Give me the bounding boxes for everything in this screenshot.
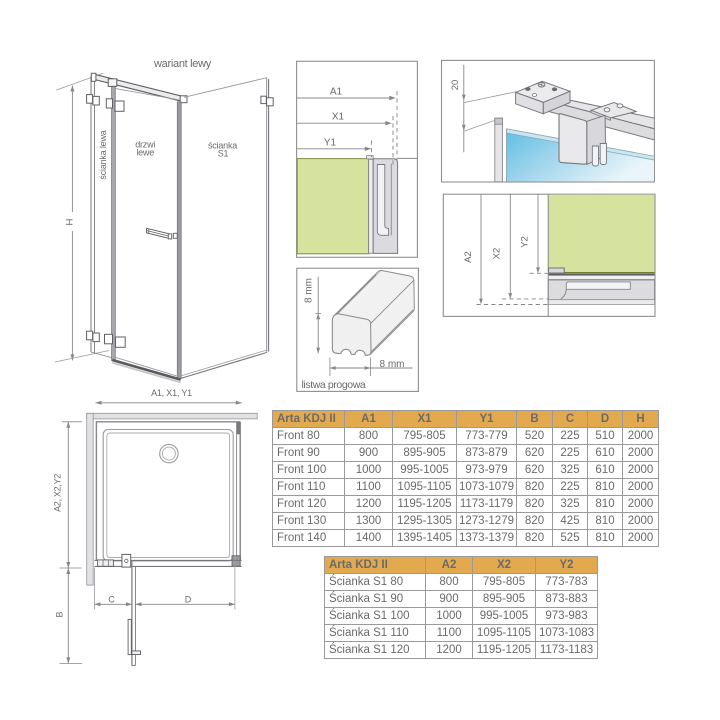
- svg-text:20: 20: [450, 80, 461, 91]
- svg-text:H: H: [65, 218, 76, 225]
- svg-text:A1, X1, Y1: A1, X1, Y1: [151, 388, 192, 398]
- svg-text:X1: X1: [332, 112, 345, 123]
- svg-text:ścianka lewa: ścianka lewa: [98, 130, 108, 179]
- svg-text:Y1: Y1: [324, 138, 337, 149]
- svg-text:Y2: Y2: [520, 236, 531, 248]
- svg-text:listwa progowa: listwa progowa: [302, 379, 366, 391]
- svg-text:lewe: lewe: [136, 147, 154, 157]
- svg-text:8 mm: 8 mm: [304, 278, 315, 303]
- svg-text:A1: A1: [330, 87, 343, 98]
- svg-text:D: D: [185, 595, 192, 605]
- svg-text:8 mm: 8 mm: [380, 359, 405, 370]
- svg-text:A2: A2: [463, 251, 474, 263]
- svg-text:A2, X2,Y2: A2, X2,Y2: [52, 474, 62, 512]
- svg-text:X2: X2: [492, 248, 503, 260]
- svg-text:C: C: [108, 595, 115, 605]
- svg-text:wariant lewy: wariant lewy: [153, 58, 212, 70]
- svg-text:S1: S1: [218, 148, 229, 158]
- svg-text:B: B: [55, 611, 65, 617]
